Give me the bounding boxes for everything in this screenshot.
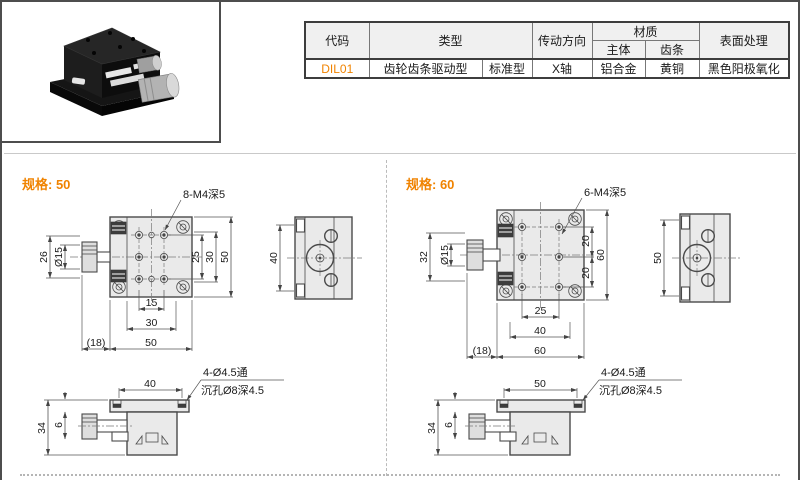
cell-type-main: 齿轮齿条驱动型	[369, 59, 482, 78]
dim-60r: 60	[595, 249, 607, 261]
section-divider	[4, 153, 796, 154]
dim-d15-60: Ø15	[439, 245, 451, 265]
dim-50front: 50	[534, 378, 546, 390]
dim-18: (18)	[87, 337, 106, 349]
header-surface: 表面处理	[699, 22, 789, 59]
dim-25: 25	[190, 251, 202, 263]
dim-50b: 50	[145, 337, 157, 349]
spec50-drawing: 8-M4深5 26 Ø15 25 30 50 15 30	[32, 182, 392, 477]
dim-40b: 40	[534, 325, 546, 337]
dim-60b: 60	[534, 345, 546, 357]
cell-surface: 黑色阳极氧化	[699, 59, 789, 78]
dim-30b: 30	[146, 317, 158, 329]
dim-15: 15	[146, 297, 158, 309]
dim-30r: 30	[204, 251, 216, 263]
dim-25b: 25	[535, 305, 547, 317]
spec60-top-view: 6-M4深5 32 Ø15 20 20 60 25	[418, 186, 626, 359]
spec50-thru-label: 4-Ø4.5通	[203, 366, 248, 379]
spec50-front-view: 40 4-Ø4.5通 沉孔Ø8深4.5 34 6	[36, 366, 284, 455]
spec50-cbore-label: 沉孔Ø8深4.5	[201, 384, 264, 397]
cell-material-rack: 黄铜	[645, 59, 699, 78]
product-photo-box	[2, 2, 221, 143]
spec-table: 代码 类型 传动方向 材质 表面处理 主体 齿条 DIL01 齿轮齿条驱动型 标…	[304, 21, 790, 79]
catalog-page: 代码 类型 传动方向 材质 表面处理 主体 齿条 DIL01 齿轮齿条驱动型 标…	[0, 0, 800, 480]
cell-direction: X轴	[532, 59, 592, 78]
spec60-thru-label: 4-Ø4.5通	[601, 366, 646, 379]
header-material-body: 主体	[592, 41, 645, 60]
dim-50r: 50	[219, 251, 231, 263]
dim-20b: 20	[580, 267, 592, 279]
dim-40front: 40	[144, 378, 156, 390]
header-type: 类型	[369, 22, 532, 59]
spec60-front-view: 50 4-Ø4.5通 沉孔Ø8深4.5 34 6	[426, 366, 682, 455]
dim-32: 32	[418, 251, 430, 263]
spec60-drawing: 6-M4深5 32 Ø15 20 20 60 25	[402, 182, 792, 477]
dim-50side: 50	[652, 252, 664, 264]
spec60-hole-label: 6-M4深5	[584, 186, 626, 199]
product-photo	[2, 2, 219, 141]
spec50-top-view: 8-M4深5 26 Ø15 25 30 50 15 30	[38, 188, 233, 351]
dim-20a: 20	[580, 235, 592, 247]
dim-6: 6	[53, 422, 65, 428]
header-material-rack: 齿条	[645, 41, 699, 60]
dim-34: 34	[36, 422, 48, 434]
spec60-side-view: 50	[652, 214, 740, 302]
header-code: 代码	[305, 22, 369, 59]
spec60-cbore-label: 沉孔Ø8深4.5	[599, 384, 662, 397]
header-material: 材质	[592, 22, 699, 41]
dim-40side: 40	[268, 252, 280, 264]
header-direction: 传动方向	[532, 22, 592, 59]
cell-type-sub: 标准型	[482, 59, 532, 78]
spec50-side-view: 40	[268, 217, 362, 299]
dim-18-60: (18)	[473, 345, 492, 357]
cell-material-body: 铝合金	[592, 59, 645, 78]
dim-6-60: 6	[443, 422, 455, 428]
dim-34-60: 34	[426, 422, 438, 434]
spec50-hole-label: 8-M4深5	[183, 188, 225, 201]
cell-code: DIL01	[305, 59, 369, 78]
dim-26: 26	[38, 251, 50, 263]
dim-d15: Ø15	[53, 247, 65, 267]
